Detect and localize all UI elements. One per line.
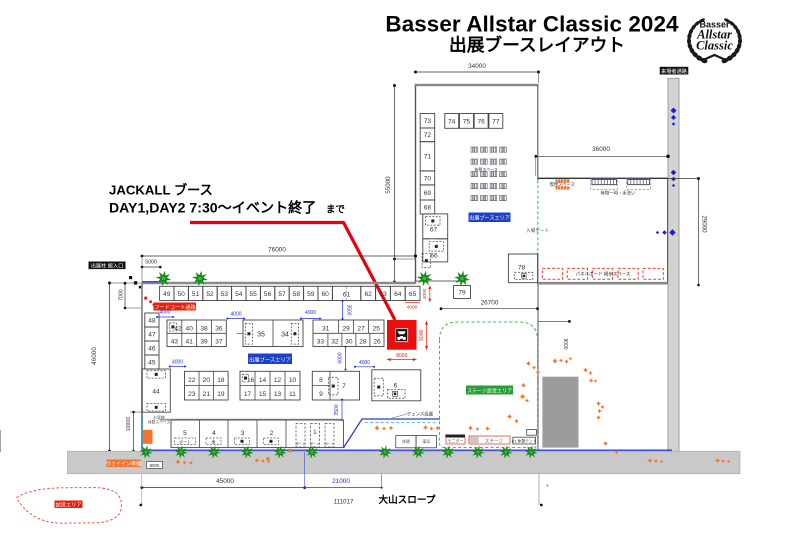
svg-text:17: 17 xyxy=(244,391,252,398)
svg-text:車: 車 xyxy=(212,438,216,444)
svg-text:試投エリア: 試投エリア xyxy=(56,500,82,508)
svg-text:4: 4 xyxy=(212,430,216,437)
svg-text:休憩: 休憩 xyxy=(402,438,410,444)
svg-text:まで: まで xyxy=(326,204,346,216)
svg-text:59: 59 xyxy=(307,291,315,298)
svg-text:47: 47 xyxy=(148,331,156,338)
svg-text:50: 50 xyxy=(178,291,186,298)
svg-text:27: 27 xyxy=(357,325,365,332)
svg-text:JACKALL ブース: JACKALL ブース xyxy=(109,182,213,198)
svg-text:出展ブースレイアウト: 出展ブースレイアウト xyxy=(449,34,625,55)
svg-text:53: 53 xyxy=(221,291,229,298)
svg-text:4000: 4000 xyxy=(407,305,418,311)
svg-text:E1 休憩テント: E1 休憩テント xyxy=(512,438,537,443)
svg-text:37: 37 xyxy=(215,339,223,346)
svg-text:ボート: ボート xyxy=(179,438,191,444)
svg-text:46000: 46000 xyxy=(91,347,98,365)
svg-text:入場ゲート: 入場ゲート xyxy=(526,227,549,234)
svg-text:67: 67 xyxy=(430,227,438,234)
svg-text:8000: 8000 xyxy=(150,463,160,468)
svg-text:14: 14 xyxy=(259,377,267,384)
svg-text:60: 60 xyxy=(322,291,330,298)
svg-text:40: 40 xyxy=(186,325,194,332)
svg-text:63: 63 xyxy=(379,291,387,298)
svg-text:4000: 4000 xyxy=(159,310,170,316)
svg-text:15: 15 xyxy=(259,391,267,398)
svg-text:21: 21 xyxy=(203,391,211,398)
svg-text:4000: 4000 xyxy=(172,360,183,366)
svg-text:45: 45 xyxy=(148,359,156,366)
svg-text:36000: 36000 xyxy=(592,146,610,153)
svg-text:46: 46 xyxy=(148,345,156,352)
svg-text:ボート: ボート xyxy=(295,441,305,446)
svg-text:8000: 8000 xyxy=(396,353,407,359)
svg-text:65: 65 xyxy=(409,291,417,298)
svg-text:70: 70 xyxy=(424,175,432,182)
svg-text:71: 71 xyxy=(424,154,432,161)
svg-text:6: 6 xyxy=(394,383,398,390)
svg-text:76000: 76000 xyxy=(268,247,286,254)
svg-text:21000: 21000 xyxy=(332,478,350,485)
svg-text:7: 7 xyxy=(342,383,346,390)
svg-text:4000: 4000 xyxy=(305,310,316,316)
svg-text:モニター: モニター xyxy=(448,438,464,444)
svg-text:5: 5 xyxy=(183,430,187,437)
svg-text:49: 49 xyxy=(163,291,171,298)
svg-text:7000: 7000 xyxy=(119,289,125,301)
svg-text:30: 30 xyxy=(345,339,353,346)
svg-text:111017: 111017 xyxy=(334,499,354,506)
svg-text:1: 1 xyxy=(313,429,317,436)
svg-text:18: 18 xyxy=(217,377,225,384)
svg-text:出展ブースエリア: 出展ブースエリア xyxy=(249,355,291,363)
svg-text:休憩スペース: 休憩スペース xyxy=(474,166,498,172)
svg-text:29000: 29000 xyxy=(701,215,708,233)
svg-text:66: 66 xyxy=(430,253,438,260)
svg-text:64: 64 xyxy=(394,291,402,298)
svg-text:34000: 34000 xyxy=(468,63,486,70)
svg-text:ステージ設営エリア: ステージ設営エリア xyxy=(467,388,512,395)
svg-text:36: 36 xyxy=(215,325,223,332)
svg-text:12: 12 xyxy=(274,377,282,384)
svg-text:5000: 5000 xyxy=(145,260,157,266)
svg-text:26: 26 xyxy=(373,339,381,346)
svg-text:荷物一時・手洗い: 荷物一時・手洗い xyxy=(600,190,636,197)
svg-text:4000: 4000 xyxy=(422,288,428,299)
svg-text:5000: 5000 xyxy=(419,330,425,341)
svg-text:16: 16 xyxy=(247,377,255,384)
svg-text:大山スロープ: 大山スロープ xyxy=(379,494,436,506)
svg-text:Basser Allstar Classic 2024: Basser Allstar Classic 2024 xyxy=(385,12,679,37)
svg-text:45000: 45000 xyxy=(216,478,234,485)
svg-text:55: 55 xyxy=(250,291,258,298)
svg-text:31: 31 xyxy=(322,325,330,332)
svg-text:33: 33 xyxy=(317,339,325,346)
svg-text:43: 43 xyxy=(171,339,179,346)
svg-text:4000: 4000 xyxy=(230,312,241,318)
svg-text:4000: 4000 xyxy=(359,360,370,366)
svg-text:39: 39 xyxy=(200,339,208,346)
svg-text:3500: 3500 xyxy=(334,404,340,415)
svg-text:34: 34 xyxy=(281,332,289,339)
svg-text:52: 52 xyxy=(206,291,214,298)
svg-text:22: 22 xyxy=(188,377,196,384)
svg-text:来場者通路: 来場者通路 xyxy=(661,67,688,75)
svg-text:77: 77 xyxy=(492,118,500,125)
svg-text:20: 20 xyxy=(203,377,211,384)
svg-text:パネルボード 掲示スペース: パネルボード 掲示スペース xyxy=(576,271,631,278)
svg-text:ウエイイン準備: ウエイイン準備 xyxy=(106,460,141,467)
svg-text:41: 41 xyxy=(186,339,194,346)
svg-text:3: 3 xyxy=(241,430,245,437)
svg-text:25: 25 xyxy=(373,325,381,332)
svg-text:78: 78 xyxy=(518,265,526,272)
svg-text:61: 61 xyxy=(343,292,351,299)
svg-text:23: 23 xyxy=(188,391,196,398)
svg-text:62: 62 xyxy=(365,291,373,298)
svg-text:ボート: ボート xyxy=(324,441,334,446)
svg-text:28: 28 xyxy=(359,339,367,346)
svg-text:68: 68 xyxy=(424,204,432,211)
svg-text:48: 48 xyxy=(148,317,156,324)
svg-text:72: 72 xyxy=(424,132,432,139)
svg-text:58: 58 xyxy=(293,291,301,298)
svg-text:44: 44 xyxy=(152,389,160,396)
svg-text:35: 35 xyxy=(257,332,265,339)
svg-text:54: 54 xyxy=(235,291,243,298)
svg-text:74: 74 xyxy=(448,118,456,125)
svg-text:車両: 車両 xyxy=(422,438,430,444)
svg-text:ボート: ボート xyxy=(310,441,320,446)
svg-text:9000: 9000 xyxy=(562,338,568,349)
svg-text:フェンス設置: フェンス設置 xyxy=(407,411,434,418)
svg-text:2: 2 xyxy=(270,430,274,437)
svg-text:出展柱 搬入口: 出展柱 搬入口 xyxy=(91,261,124,269)
svg-text:13: 13 xyxy=(274,391,282,398)
svg-text:26700: 26700 xyxy=(481,300,499,307)
svg-text:56: 56 xyxy=(264,291,272,298)
svg-text:76: 76 xyxy=(477,118,485,125)
svg-text:出展ブースエリア: 出展ブースエリア xyxy=(469,215,510,222)
svg-text:57: 57 xyxy=(278,291,286,298)
svg-text:79: 79 xyxy=(458,289,466,296)
svg-text:10: 10 xyxy=(289,377,297,384)
svg-text:42: 42 xyxy=(174,325,182,332)
svg-text:9: 9 xyxy=(319,391,323,398)
svg-text:Classic: Classic xyxy=(696,39,733,53)
svg-text:69: 69 xyxy=(424,190,432,197)
svg-text:19: 19 xyxy=(217,391,225,398)
svg-text:DAY1,DAY2 7:30～イベント終了: DAY1,DAY2 7:30～イベント終了 xyxy=(109,200,316,216)
svg-text:75: 75 xyxy=(463,118,471,125)
svg-text:11: 11 xyxy=(289,391,296,398)
svg-text:10000: 10000 xyxy=(126,417,132,432)
svg-text:38: 38 xyxy=(200,325,208,332)
svg-text:73: 73 xyxy=(424,118,432,125)
svg-text:3500: 3500 xyxy=(346,304,352,315)
svg-text:55000: 55000 xyxy=(385,176,392,194)
svg-text:29: 29 xyxy=(342,325,350,332)
svg-text:32: 32 xyxy=(331,339,339,346)
svg-text:8: 8 xyxy=(319,377,323,384)
svg-text:喫煙スペース: 喫煙スペース xyxy=(550,181,575,188)
svg-text:6000: 6000 xyxy=(338,352,344,363)
svg-text:51: 51 xyxy=(192,291,200,298)
